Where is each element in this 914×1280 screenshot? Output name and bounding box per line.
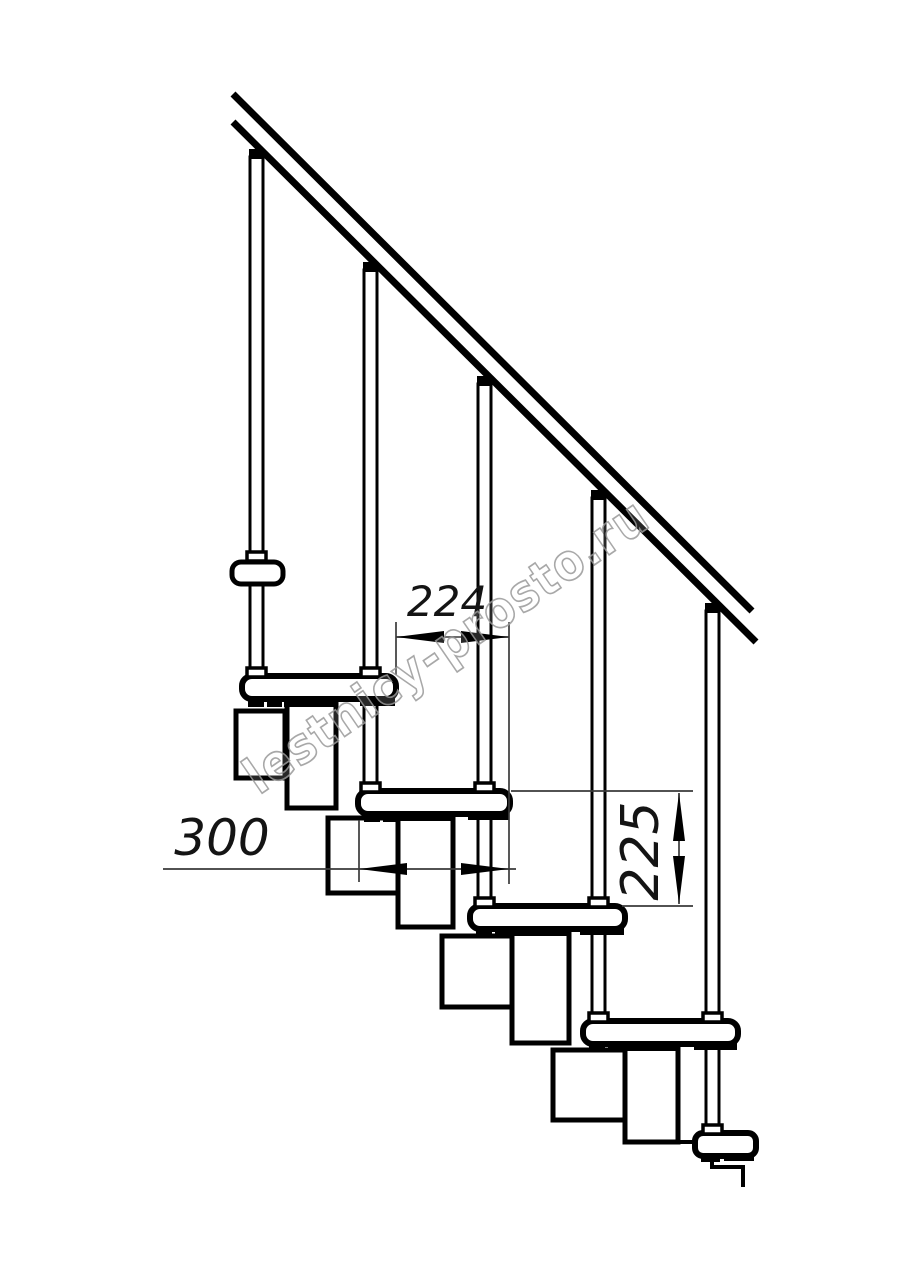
- dimension-label-300: 300: [174, 809, 269, 867]
- collar: [589, 1013, 608, 1022]
- collar: [247, 668, 266, 677]
- collar: [247, 552, 266, 561]
- baluster-5: [706, 611, 719, 1140]
- collar: [475, 783, 494, 792]
- arrowhead-up: [673, 793, 685, 841]
- tread-5: [695, 1133, 756, 1156]
- collar: [589, 898, 608, 907]
- tread-3: [470, 906, 625, 929]
- drawing-svg: 224 300 225 lestnicy-prosto.ru: [0, 0, 914, 1280]
- handrail-lower-line: [233, 122, 756, 642]
- stringer-column-3: [512, 930, 569, 1043]
- bottom-step-outline: [712, 1161, 743, 1187]
- tread-2: [358, 791, 510, 814]
- collar: [361, 783, 380, 792]
- stringer-column-4: [625, 1047, 678, 1142]
- arrowhead-down: [673, 856, 685, 904]
- stringer-box-2: [442, 936, 518, 1007]
- collar: [703, 1125, 722, 1134]
- stringer-box-3: [553, 1050, 628, 1120]
- tread-4: [583, 1021, 738, 1044]
- collar: [475, 898, 494, 907]
- handrail: [233, 94, 756, 642]
- collar: [703, 1013, 722, 1022]
- wall-bracket: [232, 562, 283, 584]
- stringer-box-1: [328, 818, 403, 893]
- staircase-technical-drawing: 224 300 225 lestnicy-prosto.ru: [0, 0, 914, 1280]
- dimension-label-225: 225: [611, 801, 671, 900]
- baluster-1: [250, 157, 263, 680]
